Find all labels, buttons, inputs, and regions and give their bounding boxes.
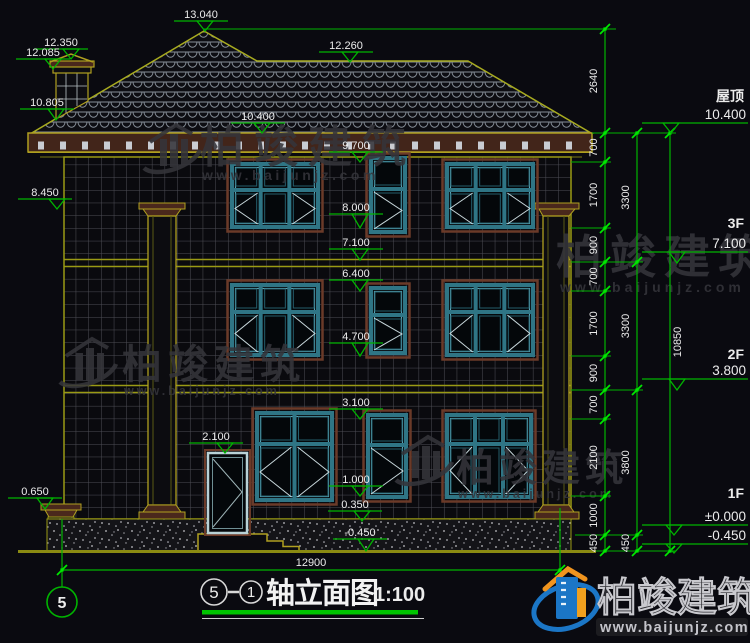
watermark-url-text: www.baijunjz.com <box>457 487 614 501</box>
dentil <box>500 142 506 150</box>
title-block: 5 1 轴立面图 1:100 <box>201 576 425 619</box>
drawing-scale: 1:100 <box>374 584 425 606</box>
dim-node <box>603 260 606 263</box>
dentil <box>456 142 462 150</box>
level-value: 8.450 <box>31 187 59 199</box>
window-frame <box>447 164 533 227</box>
watermark-brand-text: 柏竣建筑 <box>456 448 628 490</box>
foundation-plinth <box>47 519 571 551</box>
dim-node <box>603 226 606 229</box>
brand-url: www.baijunjz.com <box>599 620 749 636</box>
level-value: 7.100 <box>342 237 370 249</box>
dim-value-vertical: 700 <box>588 138 600 156</box>
elevation-drawing: 柏竣建筑www.baijunjz.com柏竣建筑www.baijunjz.com… <box>0 0 750 643</box>
brand-name: 柏竣建筑 <box>597 576 750 620</box>
storey-level-value: 10.400 <box>705 107 746 122</box>
dim-node <box>603 354 606 357</box>
level-value: 0.650 <box>21 486 49 498</box>
dim-node <box>635 533 638 536</box>
level-value: 12.085 <box>26 47 60 59</box>
drawing-title: 轴立面图 <box>266 576 378 610</box>
storey-label: 2F <box>728 346 745 362</box>
window-frame <box>447 285 533 355</box>
storey-label: 3F <box>728 215 745 231</box>
dim-node <box>603 533 606 536</box>
level-value: 2.100 <box>202 431 230 443</box>
level-value: 8.000 <box>342 202 370 214</box>
dentil <box>38 142 44 150</box>
dentil <box>478 142 484 150</box>
level-value: 6.400 <box>342 268 370 280</box>
level-value: 10.400 <box>241 111 275 123</box>
dentil <box>566 142 572 150</box>
watermark-url-text: www.baijunjz.com <box>559 279 745 295</box>
dentil <box>522 142 528 150</box>
storey-level-value: -0.450 <box>708 528 746 543</box>
dim-node <box>603 289 606 292</box>
level-triangle <box>666 525 682 535</box>
level-value: -0.450 <box>344 527 375 539</box>
storey-level-value: ±0.000 <box>705 509 746 524</box>
axis-bubble-label: 5 <box>58 595 67 612</box>
dim-value-vertical: 10850 <box>672 327 684 358</box>
level-value: 12.260 <box>329 40 363 52</box>
level-value: 1.000 <box>342 474 370 486</box>
dim-value-vertical: 900 <box>588 364 600 382</box>
window-3f-right <box>443 160 538 232</box>
storey-level-value: 3.800 <box>712 363 746 378</box>
cad-canvas: 柏竣建筑www.baijunjz.com柏竣建筑www.baijunjz.com… <box>0 0 750 643</box>
dim-node <box>603 388 606 391</box>
dim-node <box>635 388 638 391</box>
dentil <box>104 142 110 150</box>
watermark-brand-text: 柏竣建筑 <box>122 343 306 387</box>
dentil <box>544 142 550 150</box>
dentil <box>192 142 198 150</box>
dentil <box>126 142 132 150</box>
level-value: 9.700 <box>342 140 370 152</box>
storey-level-value: 7.100 <box>712 236 746 251</box>
dim-node <box>603 417 606 420</box>
level-value: 10.805 <box>30 97 64 109</box>
dim-value-vertical: 3300 <box>620 185 632 209</box>
dim-value-vertical: 1700 <box>588 311 600 335</box>
watermark-url-text: www.baijunjz.com <box>201 167 379 183</box>
level-value: 3.100 <box>342 397 370 409</box>
width-dim-value: 12900 <box>296 557 327 569</box>
level-value: 4.700 <box>342 331 370 343</box>
dentil <box>434 142 440 150</box>
dim-value-vertical: 3300 <box>620 314 632 338</box>
dim-value-vertical: 700 <box>588 267 600 285</box>
watermark-brand-text: 柏竣建筑 <box>200 123 416 172</box>
dim-node <box>603 27 606 30</box>
logo-building-blue <box>556 577 578 619</box>
roof-face <box>30 31 591 134</box>
dim-value-vertical: 2100 <box>588 445 600 469</box>
window-1f-left <box>253 409 337 505</box>
dim-value-vertical: 450 <box>620 534 632 552</box>
dim-node <box>603 494 606 497</box>
brand-logo: 柏竣建筑 www.baijunjz.com <box>528 569 750 637</box>
storey-label: 屋顶 <box>716 88 744 104</box>
dim-node <box>603 131 606 134</box>
level-triangle <box>669 379 685 390</box>
dentil <box>60 142 66 150</box>
dim-value-vertical: 900 <box>588 236 600 254</box>
dim-node <box>558 568 561 571</box>
window-2f-center <box>367 284 410 358</box>
storey-label: 1F <box>728 485 745 501</box>
title-underline-green <box>202 610 418 615</box>
dim-value-vertical: 450 <box>588 534 600 552</box>
dim-node <box>635 549 638 552</box>
watermark-url-text: www.baijunjz.com <box>123 384 280 398</box>
dim-node <box>60 568 63 571</box>
dim-value-vertical: 700 <box>588 395 600 413</box>
level-value: 0.350 <box>341 499 369 511</box>
dentil <box>82 142 88 150</box>
title-axis-end: 1 <box>247 584 255 601</box>
window-2f-right <box>443 281 538 360</box>
dim-node <box>603 160 606 163</box>
level-triangle <box>49 199 65 209</box>
dim-value-vertical: 2640 <box>588 69 600 93</box>
dim-node <box>603 549 606 552</box>
dim-value-vertical: 1700 <box>588 183 600 207</box>
logo-pillar-orange <box>577 588 586 617</box>
level-value: 13.040 <box>184 9 218 21</box>
dim-value-vertical: 1000 <box>588 503 600 527</box>
entry-door <box>205 450 250 535</box>
window-1f-center <box>364 411 411 502</box>
dim-node <box>635 260 638 263</box>
title-axis-start: 5 <box>209 583 218 602</box>
dim-node <box>635 131 638 134</box>
dim-value-vertical: 3800 <box>620 450 632 474</box>
